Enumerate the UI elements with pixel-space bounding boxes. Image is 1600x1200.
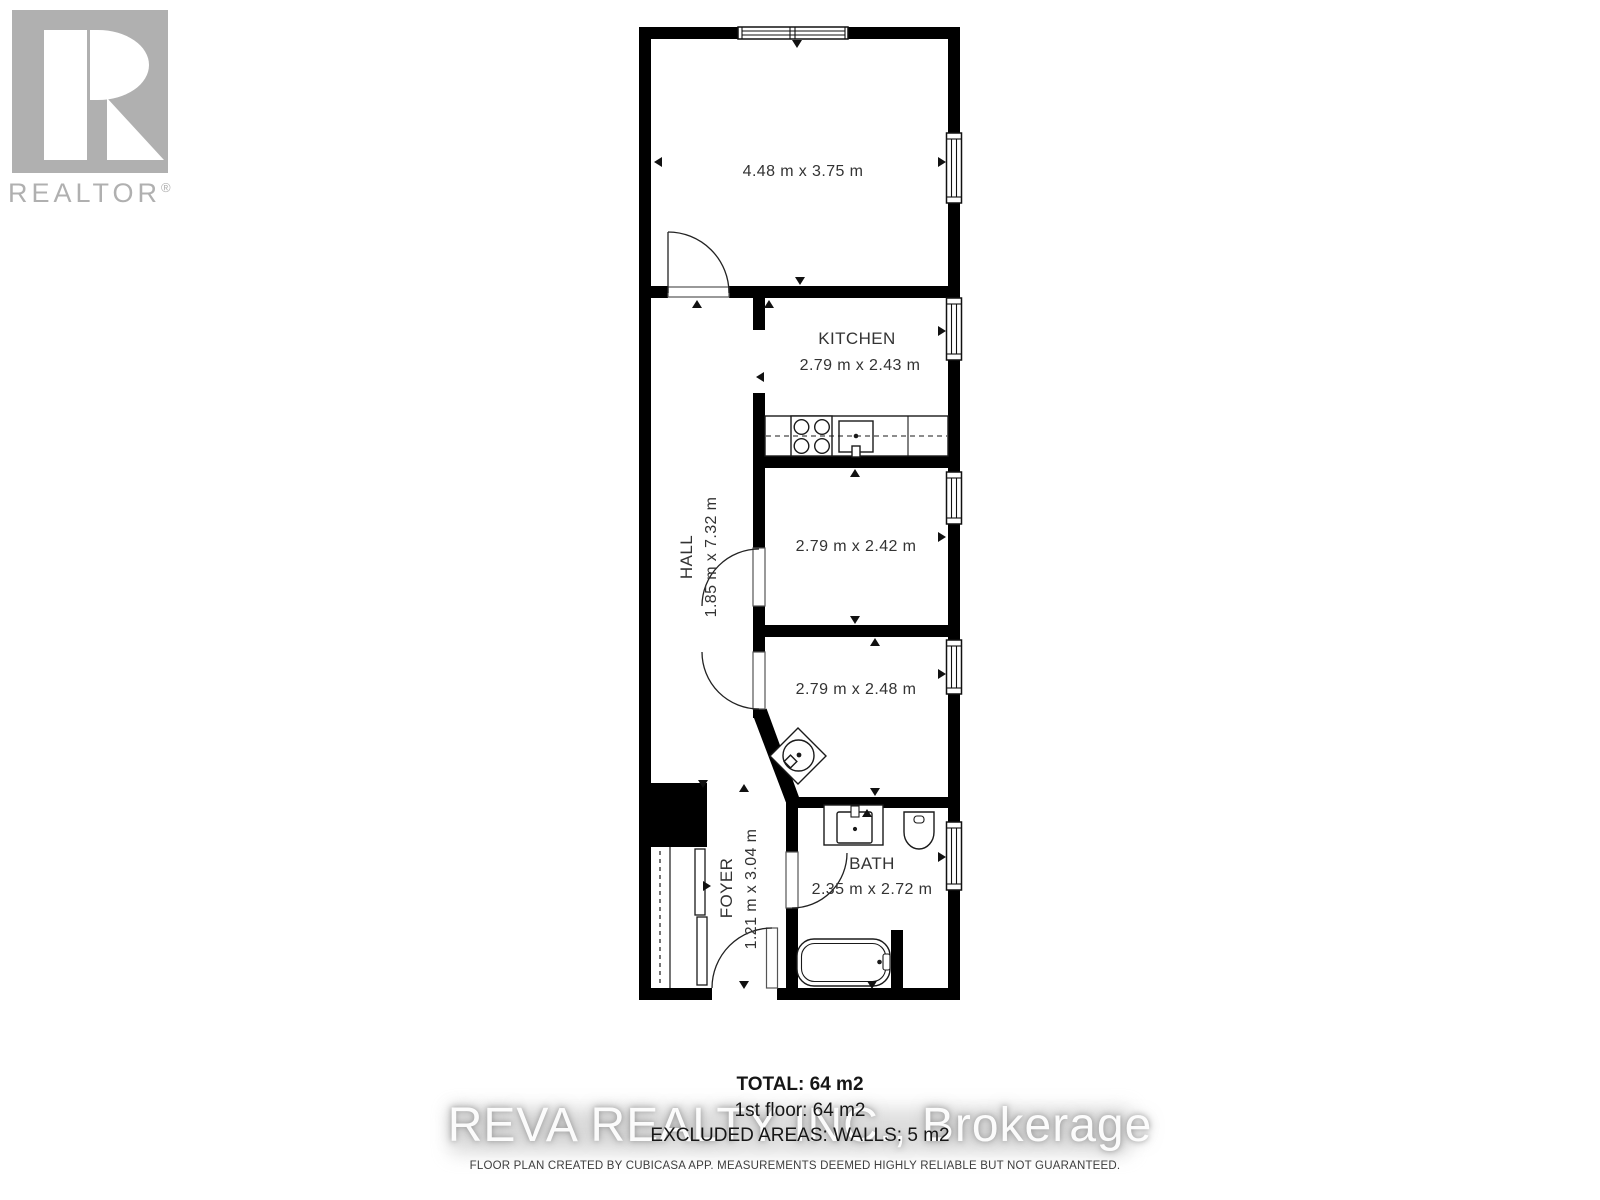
door-bath <box>786 852 847 908</box>
window-bedroom3 <box>947 640 962 694</box>
kitchen-sink <box>839 421 873 457</box>
room-dims-hall: 1.85 m x 7.32 m <box>703 497 721 618</box>
room-label-hall: HALL <box>677 535 697 579</box>
room-dims-foyer: 1.21 m x 3.04 m <box>743 829 761 950</box>
room-dims-main: 4.48 m x 3.75 m <box>743 163 864 181</box>
kitchen-fixtures <box>765 416 948 457</box>
window-top-room-east <box>947 133 962 203</box>
room-label-bath: BATH <box>849 854 895 874</box>
room-dims-kitchen: 2.79 m x 2.43 m <box>800 357 921 375</box>
room-label-foyer: FOYER <box>717 858 737 919</box>
closet <box>660 847 707 988</box>
door-top-room <box>668 232 729 297</box>
toilet <box>904 812 934 849</box>
excluded-area-text: EXCLUDED AREAS: WALLS: 5 m2 <box>0 1125 1600 1147</box>
first-floor-area-text: 1st floor: 64 m2 <box>0 1100 1600 1122</box>
window-bedroom2 <box>947 472 962 524</box>
bath-vanity <box>824 805 883 845</box>
window-top-room-north <box>738 27 848 39</box>
floor-plan-page: REALTOR® <box>0 0 1600 1200</box>
room-label-kitchen: KITCHEN <box>818 329 895 349</box>
door-bedroom3 <box>702 652 765 709</box>
window-kitchen <box>947 298 962 360</box>
bathtub <box>797 939 890 986</box>
room-dims-bedroom2: 2.79 m x 2.42 m <box>796 538 917 556</box>
window-bath <box>947 822 962 890</box>
closet-door-panel <box>697 917 707 985</box>
room-dims-bath: 2.35 m x 2.72 m <box>812 881 933 899</box>
room-dims-bedroom3: 2.79 m x 2.48 m <box>796 681 917 699</box>
footer-disclaimer: FLOOR PLAN CREATED BY CUBICASA APP. MEAS… <box>0 1160 1590 1172</box>
total-area-text: TOTAL: 64 m2 <box>0 1074 1600 1096</box>
area-summary: TOTAL: 64 m2 1st floor: 64 m2 EXCLUDED A… <box>0 1074 1600 1147</box>
storage-block <box>644 783 707 847</box>
